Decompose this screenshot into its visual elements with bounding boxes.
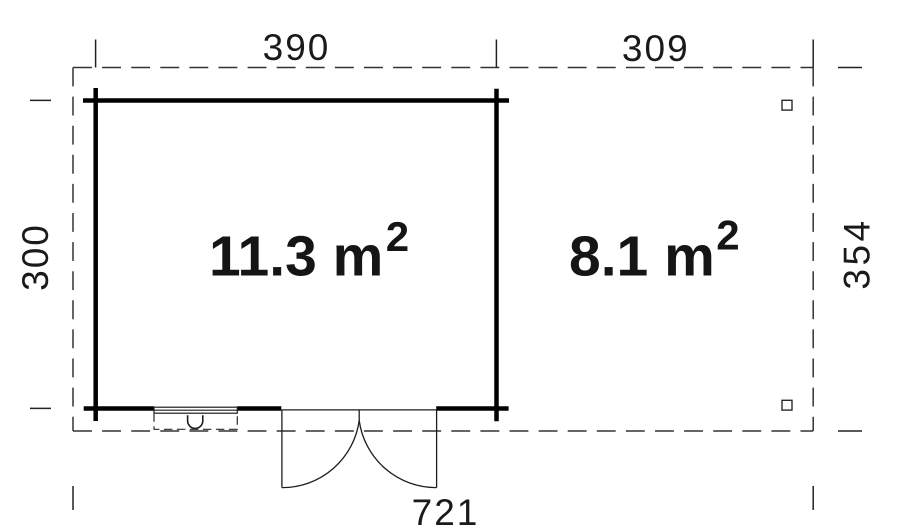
svg-text:721: 721	[412, 492, 480, 530]
svg-text:309: 309	[622, 28, 690, 69]
svg-text:8.1 m: 8.1 m	[569, 224, 715, 288]
svg-text:11.3 m: 11.3 m	[209, 224, 383, 288]
svg-text:390: 390	[263, 27, 331, 68]
svg-text:2: 2	[386, 213, 409, 260]
svg-text:354: 354	[836, 217, 877, 289]
svg-text:300: 300	[15, 223, 56, 291]
svg-text:2: 2	[716, 212, 739, 259]
